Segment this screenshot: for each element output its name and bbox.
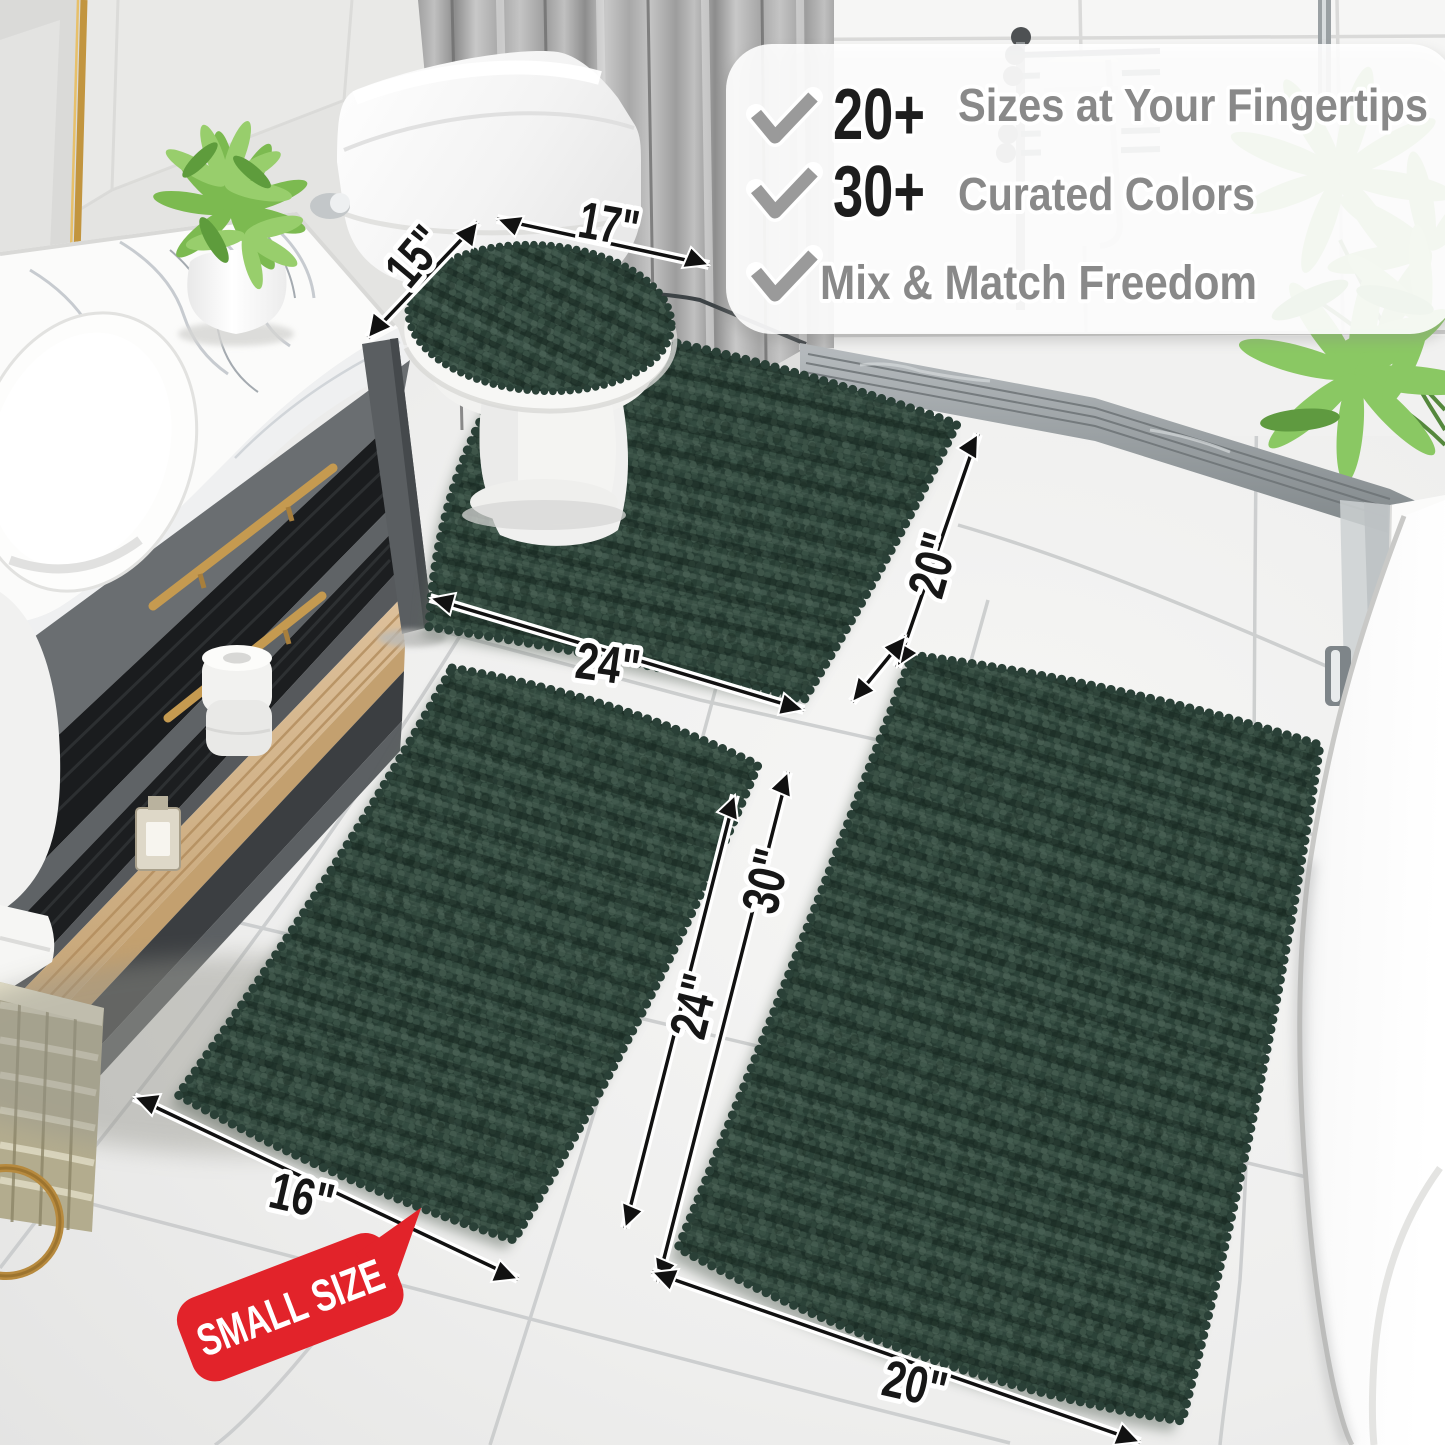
svg-text:Sizes at Your Fingertips: Sizes at Your Fingertips <box>958 79 1428 131</box>
svg-text:24": 24" <box>572 632 643 698</box>
svg-text:17": 17" <box>574 191 643 259</box>
svg-text:30+: 30+ <box>833 152 925 232</box>
svg-text:Mix & Match Freedom: Mix & Match Freedom <box>820 257 1257 310</box>
svg-text:Curated Colors: Curated Colors <box>958 168 1255 220</box>
svg-text:20+: 20+ <box>833 75 925 155</box>
